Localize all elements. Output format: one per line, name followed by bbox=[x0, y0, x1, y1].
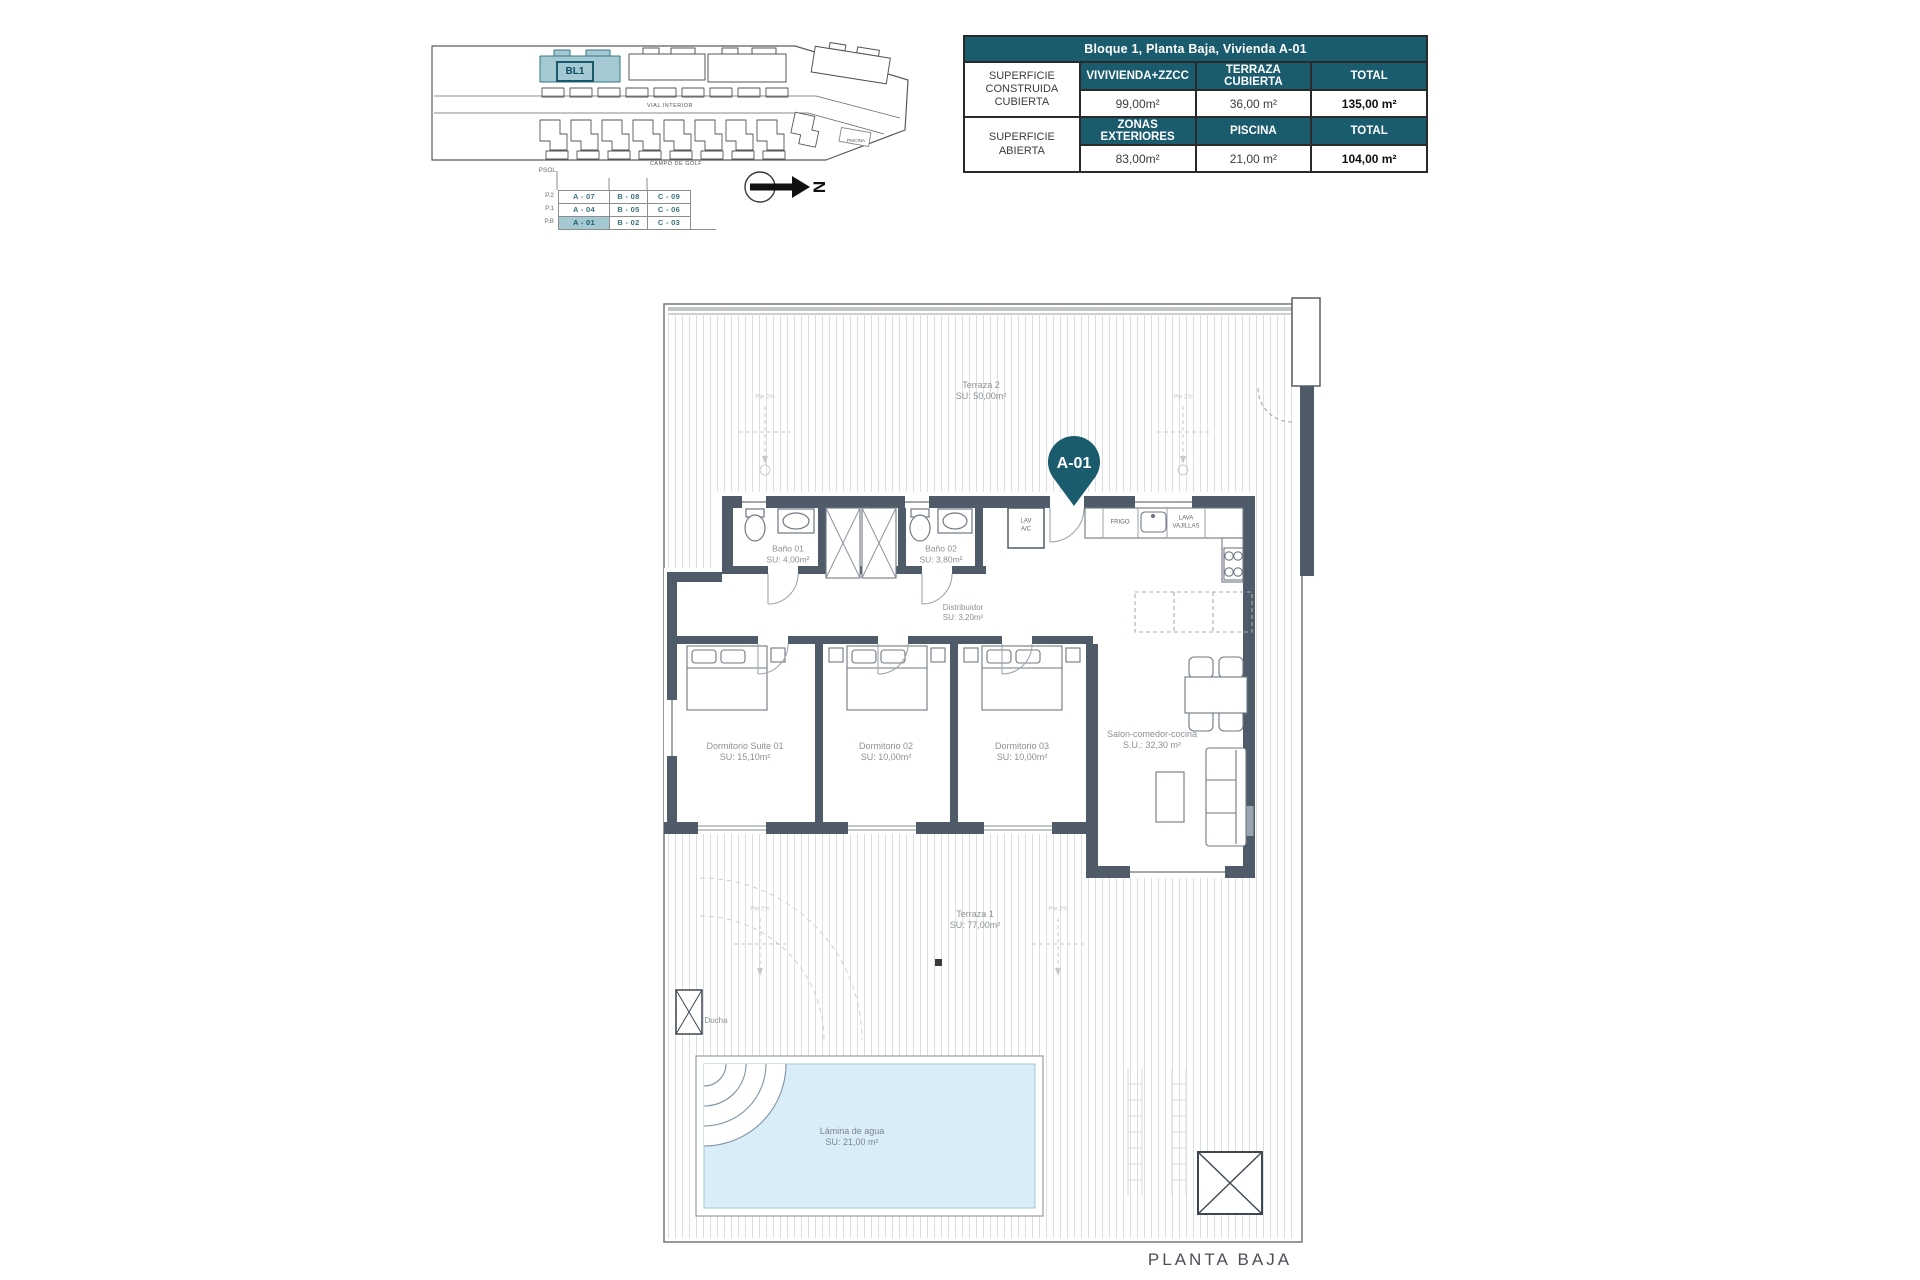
dorm2-area: SU: 10,00m² bbox=[859, 752, 913, 763]
suite-name: Dormitorio Suite 01 bbox=[706, 741, 783, 752]
distribuidor-name: Distribuidor bbox=[943, 603, 983, 613]
entry-gate bbox=[1292, 298, 1320, 386]
beds bbox=[687, 646, 1080, 710]
dorm3-area: SU: 10,00m² bbox=[995, 752, 1049, 763]
unit-b02: B - 02 bbox=[610, 217, 648, 230]
levels-axis-label: PSOL bbox=[524, 167, 556, 174]
utility-label: LAV A/C bbox=[1021, 519, 1032, 534]
unit-c06: C - 06 bbox=[648, 204, 691, 217]
val-vivienda: 99,00m² bbox=[1080, 90, 1196, 117]
unit-pin-label: A-01 bbox=[1057, 455, 1092, 472]
slope-label-t1a: Pte 2% bbox=[1048, 906, 1067, 914]
row-label-construida: SUPERFICIE CONSTRUIDA CUBIERTA bbox=[964, 62, 1080, 117]
site-plan: VIAL INTERIOR CAMPO DE GOLF PISCINA bbox=[432, 40, 908, 167]
terraza1-area: SU: 77,00m² bbox=[950, 920, 1001, 931]
val-total-1: 135,00 m² bbox=[1311, 90, 1427, 117]
salon-label: Salon-comedor-cocina S.U.: 32,30 m² bbox=[1107, 729, 1197, 752]
bano1-label: Baño 01 SU: 4,00m² bbox=[767, 543, 810, 564]
ducha-label: Ducha bbox=[704, 1016, 727, 1026]
terraza2-label: Terraza 2 SU: 50,00m² bbox=[956, 380, 1007, 403]
col-total-1: TOTAL bbox=[1311, 62, 1427, 90]
bano2-area: SU: 3,80m² bbox=[920, 554, 963, 565]
bano2-label: Baño 02 SU: 3,80m² bbox=[920, 543, 963, 564]
slope-label-t1b: Pte 2% bbox=[750, 906, 769, 914]
slope-label-t2b: Pte 2% bbox=[1173, 394, 1192, 402]
block-bl1-label: BL1 bbox=[556, 61, 594, 82]
outdoor-shower bbox=[676, 990, 702, 1034]
unit-c03: C - 03 bbox=[648, 217, 691, 230]
val-total-2: 104,00 m² bbox=[1311, 145, 1427, 172]
row-label-abierta: SUPERFICIE ABIERTA bbox=[964, 117, 1080, 172]
suite-area: SU: 15,10m² bbox=[706, 752, 783, 763]
distribuidor-area: SU: 3,20m² bbox=[943, 613, 983, 623]
street-label: VIAL INTERIOR bbox=[647, 103, 693, 109]
dorm3-name: Dormitorio 03 bbox=[995, 741, 1049, 752]
dorm3-label: Dormitorio 03 SU: 10,00m² bbox=[995, 741, 1049, 764]
floor-plan: A-01 bbox=[664, 298, 1320, 1242]
terraza1-name: Terraza 1 bbox=[950, 909, 1001, 920]
unit-a07: A - 07 bbox=[559, 191, 610, 204]
plan-title: PLANTA BAJA bbox=[1148, 1250, 1292, 1270]
distribuidor-label: Distribuidor SU: 3,20m² bbox=[943, 603, 983, 623]
pool-name: Lámina de agua bbox=[820, 1126, 885, 1137]
level-p2-label: P.2 bbox=[524, 192, 554, 199]
unit-a01-highlighted: A - 01 bbox=[559, 217, 610, 230]
unit-c09: C - 09 bbox=[648, 191, 691, 204]
pool-area: SU: 21,00 m² bbox=[820, 1137, 885, 1148]
level-p1-label: P.1 bbox=[524, 205, 554, 212]
unit-b05: B - 05 bbox=[610, 204, 648, 217]
val-terraza-cubierta: 36,00 m² bbox=[1196, 90, 1312, 117]
col-zonas-ext: ZONAS EXTERIORES bbox=[1080, 117, 1196, 145]
terraza2-name: Terraza 2 bbox=[956, 380, 1007, 391]
fridge-label: FRIGO bbox=[1111, 519, 1130, 527]
dorm2-name: Dormitorio 02 bbox=[859, 741, 913, 752]
summary-title: Bloque 1, Planta Baja, Vivienda A-01 bbox=[964, 36, 1427, 62]
utility-lav: LAV bbox=[1021, 519, 1032, 527]
unit-b08: B - 08 bbox=[610, 191, 648, 204]
north-letter: N bbox=[810, 181, 829, 193]
surface-summary-table: Bloque 1, Planta Baja, Vivienda A-01 SUP… bbox=[963, 35, 1428, 173]
utility-ac: A/C bbox=[1021, 526, 1032, 534]
slope-label-t2a: Pte 2% bbox=[755, 394, 774, 402]
col-piscina: PISCINA bbox=[1196, 117, 1312, 145]
col-terraza-cubierta: TERRAZA CUBIERTA bbox=[1196, 62, 1312, 90]
bano2-name: Baño 02 bbox=[920, 543, 963, 554]
dishwasher-line1: LAVA bbox=[1173, 516, 1200, 524]
north-arrow-icon: N bbox=[745, 172, 829, 202]
unit-matrix: A - 07 B - 08 C - 09 A - 04 B - 05 C - 0… bbox=[558, 190, 691, 230]
pool-tech-box bbox=[1198, 1152, 1262, 1214]
col-total-2: TOTAL bbox=[1311, 117, 1427, 145]
floorplan-page: { "page": { "plan_title": "PLANTA BAJA" … bbox=[0, 0, 1920, 1280]
dishwasher-line2: VAJILLAS bbox=[1173, 523, 1200, 531]
plan-drawing: VIAL INTERIOR CAMPO DE GOLF PISCINA N bbox=[0, 0, 1920, 1280]
terraza2-area: SU: 50,00m² bbox=[956, 391, 1007, 402]
pool-label: Lámina de agua SU: 21,00 m² bbox=[820, 1126, 885, 1149]
suite-label: Dormitorio Suite 01 SU: 15,10m² bbox=[706, 741, 783, 764]
dorm2-label: Dormitorio 02 SU: 10,00m² bbox=[859, 741, 913, 764]
salon-name: Salon-comedor-cocina bbox=[1107, 729, 1197, 740]
piscina-site-label: PISCINA bbox=[847, 138, 865, 143]
bano1-area: SU: 4,00m² bbox=[767, 554, 810, 565]
bano1-name: Baño 01 bbox=[767, 543, 810, 554]
salon-area: S.U.: 32,30 m² bbox=[1107, 740, 1197, 751]
val-piscina: 21,00 m² bbox=[1196, 145, 1312, 172]
boundary-wall bbox=[1300, 386, 1314, 576]
col-vivienda: VIVIVIENDA+ZZCC bbox=[1080, 62, 1196, 90]
unit-a04: A - 04 bbox=[559, 204, 610, 217]
level-pb-label: P.B bbox=[524, 218, 554, 225]
deck-drain bbox=[935, 959, 942, 966]
terraza1-label: Terraza 1 SU: 77,00m² bbox=[950, 909, 1001, 932]
val-zonas-ext: 83,00m² bbox=[1080, 145, 1196, 172]
golf-label: CAMPO DE GOLF bbox=[650, 161, 702, 167]
dishwasher-label: LAVA VAJILLAS bbox=[1173, 516, 1200, 531]
